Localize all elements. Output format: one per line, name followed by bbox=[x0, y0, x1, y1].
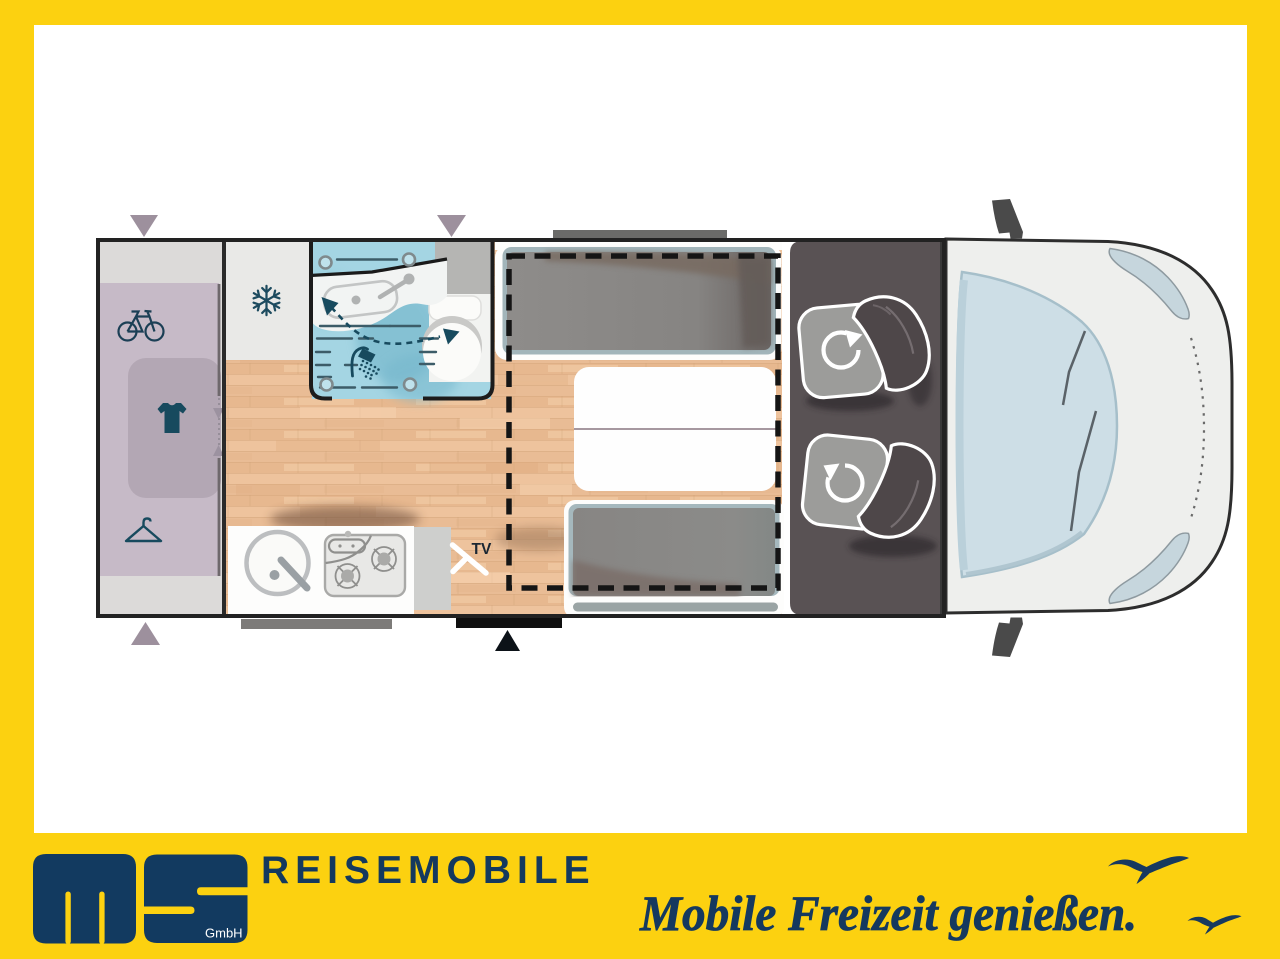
svg-text:Mobile Freizeit genießen.: Mobile Freizeit genießen. bbox=[639, 885, 1137, 941]
svg-text:TV: TV bbox=[472, 541, 492, 558]
svg-text:REISEMOBILE: REISEMOBILE bbox=[261, 849, 596, 892]
svg-text:GmbH: GmbH bbox=[205, 926, 243, 941]
